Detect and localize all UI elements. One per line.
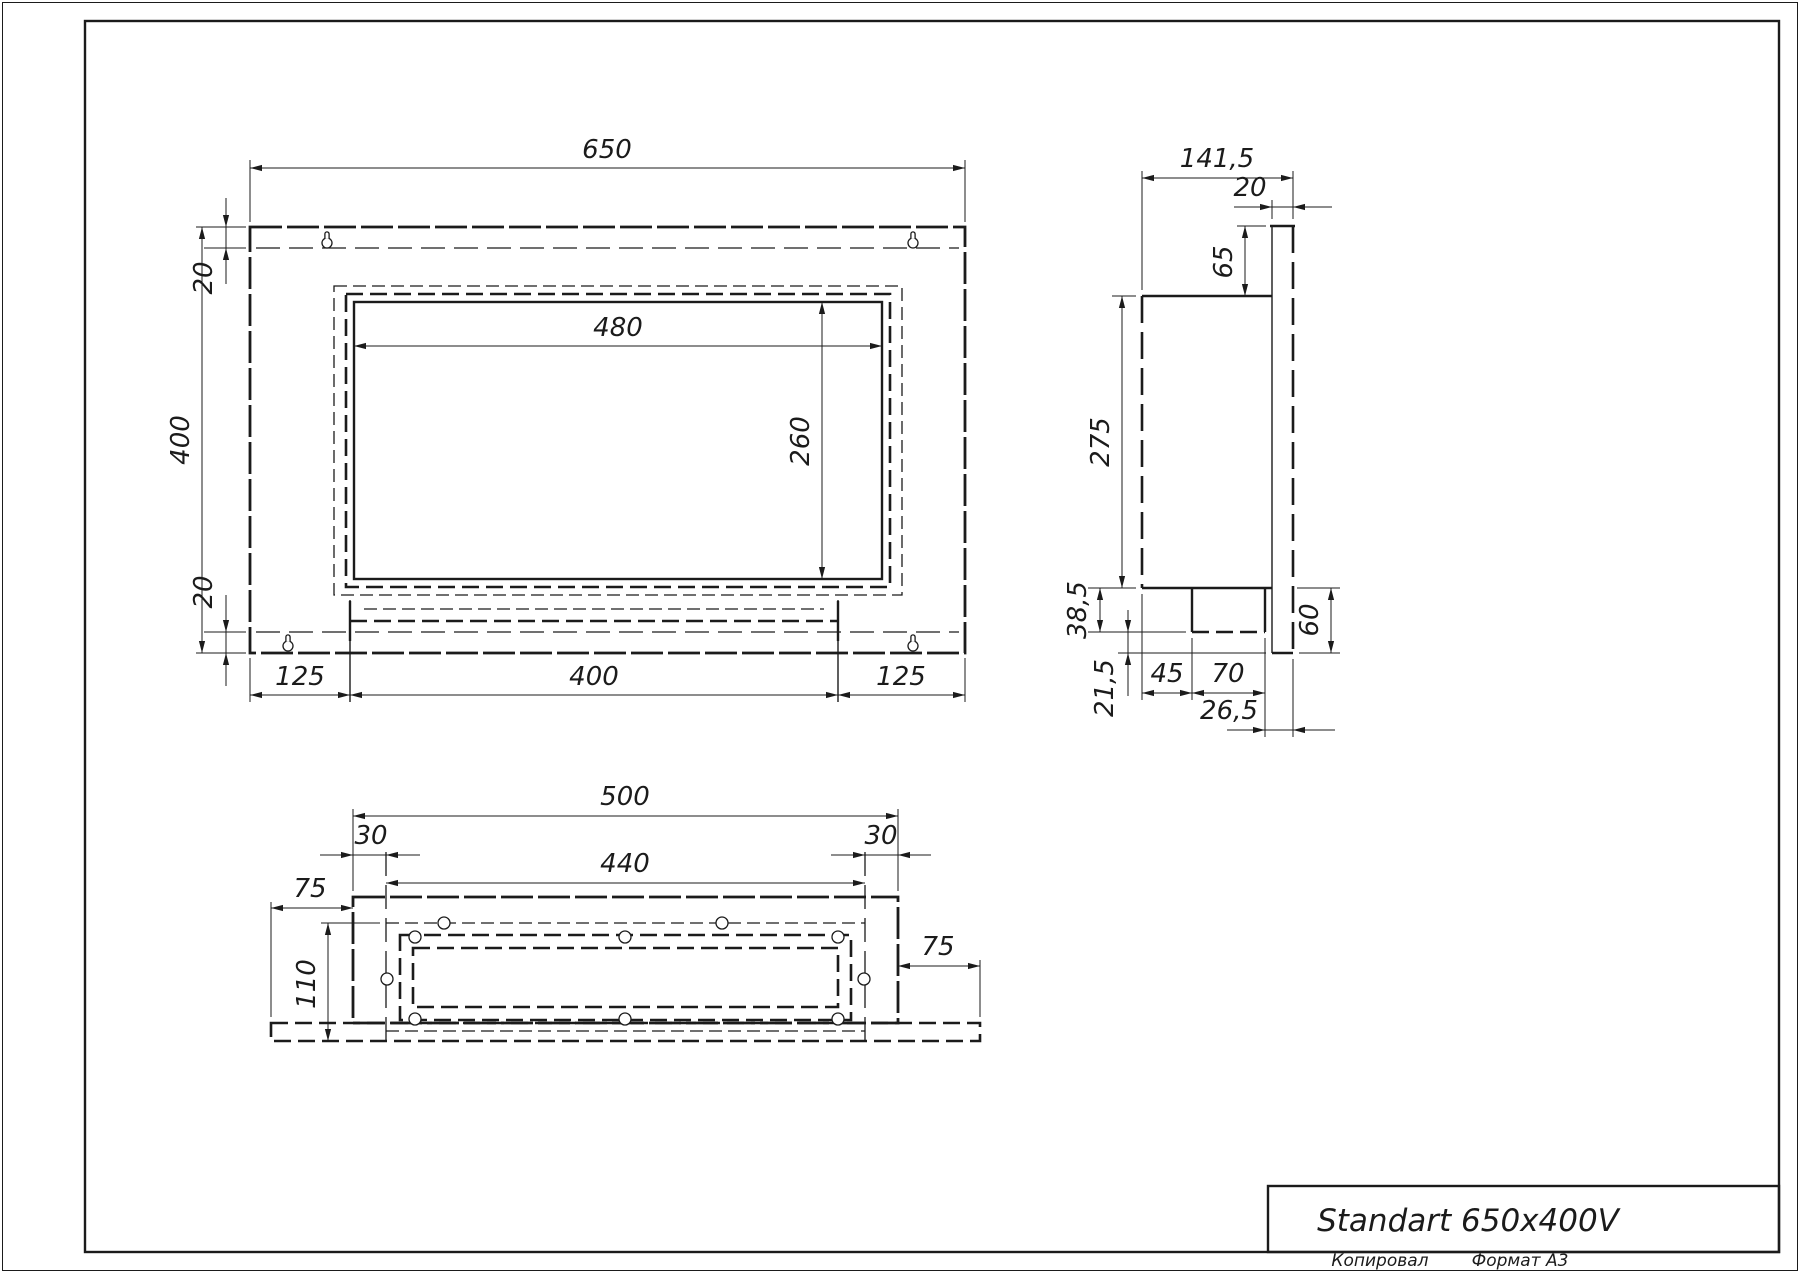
front-view: 650 20 400 20 480 260 xyxy=(166,135,965,702)
bottom-view-outline xyxy=(271,852,980,1050)
dim-front-inset-top: 20 xyxy=(189,261,219,294)
dim-side-top-offset: 65 xyxy=(1209,245,1239,278)
keyhole-slot-icon xyxy=(283,635,293,651)
bottom-view-dimensions: 500 30 30 440 75 110 75 xyxy=(271,782,980,1041)
side-view: 141,5 20 65 275 38,5 21,5 xyxy=(1063,144,1340,737)
dim-bottom-inset-right: 30 xyxy=(864,821,897,851)
dim-bottom-wing-right: 75 xyxy=(921,932,954,962)
dim-bottom-wing-left: 75 xyxy=(293,874,326,904)
dim-bottom-inset-left: 30 xyxy=(354,821,387,851)
side-view-dimensions: 141,5 20 65 275 38,5 21,5 xyxy=(1063,144,1340,737)
dim-side-right-ext: 60 xyxy=(1295,603,1325,636)
dim-side-drop2: 21,5 xyxy=(1090,659,1120,717)
page-frame xyxy=(3,3,1798,1271)
dim-front-width: 650 xyxy=(582,135,632,165)
drawing-sheet: 650 20 400 20 480 260 xyxy=(0,0,1800,1273)
dim-side-drop1: 38,5 xyxy=(1063,581,1093,639)
side-view-outline xyxy=(1142,226,1295,653)
dim-front-bottom-center: 400 xyxy=(569,662,619,692)
dim-bottom-depth: 110 xyxy=(292,959,322,1009)
dim-side-seg3: 26,5 xyxy=(1200,696,1258,726)
keyhole-slot-icon xyxy=(908,232,918,248)
dim-front-height: 400 xyxy=(166,415,196,465)
drawing-title: Standart 650x400V xyxy=(1317,1203,1622,1239)
dim-opening-height: 260 xyxy=(786,416,816,466)
dim-front-inset-bottom: 20 xyxy=(189,575,219,608)
dim-side-flange: 20 xyxy=(1233,173,1266,203)
bottom-view: 500 30 30 440 75 110 75 xyxy=(271,782,980,1050)
sheet-footer: Копировал Формат А3 xyxy=(1331,1251,1568,1271)
dim-bottom-inner-width: 440 xyxy=(600,849,650,879)
footer-copied-label: Копировал xyxy=(1331,1251,1428,1271)
keyhole-slot-icon xyxy=(322,232,332,248)
dim-side-seg1: 45 xyxy=(1150,659,1183,689)
dim-side-depth: 141,5 xyxy=(1180,144,1254,174)
front-view-outline xyxy=(250,227,965,702)
footer-format-label: Формат А3 xyxy=(1472,1251,1569,1271)
keyhole-slot-icon xyxy=(908,635,918,651)
screw-holes xyxy=(381,917,870,1025)
dim-side-body-height: 275 xyxy=(1086,417,1116,467)
dim-bottom-width: 500 xyxy=(600,782,650,812)
dim-opening-width: 480 xyxy=(593,313,643,343)
dim-front-bottom-left: 125 xyxy=(275,662,325,692)
front-view-dimensions: 650 20 400 20 480 260 xyxy=(166,135,965,702)
technical-drawing: 650 20 400 20 480 260 xyxy=(0,0,1800,1273)
dim-front-bottom-right: 125 xyxy=(876,662,926,692)
dim-side-seg2: 70 xyxy=(1211,659,1244,689)
title-block: Standart 650x400V xyxy=(1268,1186,1779,1252)
